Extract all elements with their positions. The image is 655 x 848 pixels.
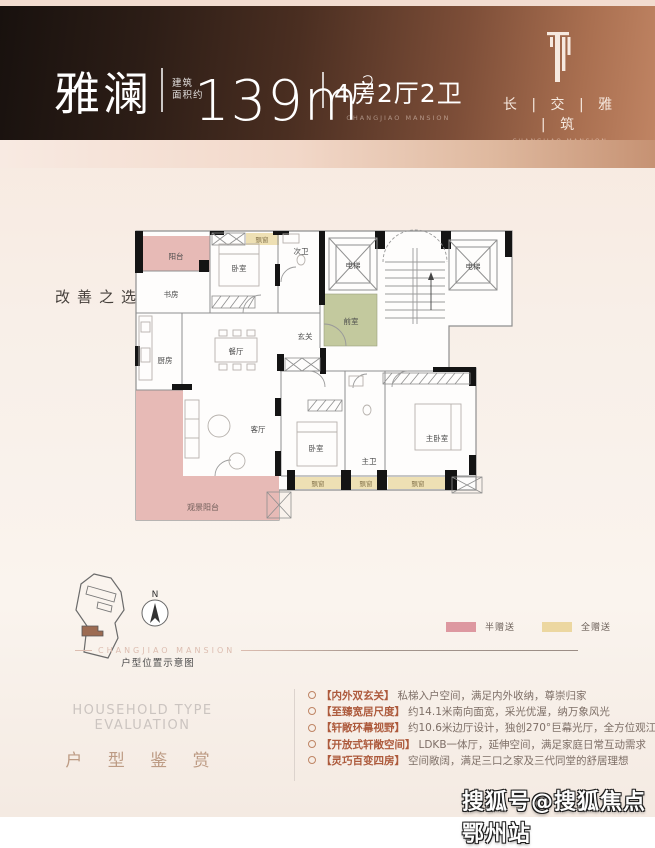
site-building bbox=[86, 586, 116, 602]
selling-point-row: 【灵巧百变四房】 空间敞阔，满足三口之家及三代同堂的舒居理想 bbox=[308, 752, 655, 768]
evaluation-title-cn: 户 型 鉴 赏 bbox=[35, 746, 250, 771]
legend-swatch-full bbox=[542, 622, 572, 632]
header-banner: 雅澜 建筑 面积约 139m2 4房2厅2卫 CHANGJIAO MANSION… bbox=[0, 6, 655, 140]
floor-plan: 阳台 书房 卧室 飘窗 次卫 电梯 电梯 前室 玄关 餐厅 厨房 客厅 观景阳台… bbox=[115, 218, 535, 538]
evaluation-vertical-divider bbox=[294, 689, 295, 781]
legend-label-full: 全赠送 bbox=[581, 620, 611, 633]
room-label-foyer: 玄关 bbox=[298, 331, 313, 341]
header-divider-2 bbox=[322, 72, 324, 108]
legend: 半赠送 全赠送 bbox=[446, 620, 611, 633]
selling-points-list: 【内外双玄关】 私梯入户空间，满足内外收纳，尊崇归家 【至臻宽居尺度】 约14.… bbox=[308, 687, 655, 768]
brand-name-cn: 长 | 交 | 雅 | 筑 bbox=[494, 94, 626, 134]
poster-page: 雅澜 建筑 面积约 139m2 4房2厅2卫 CHANGJIAO MANSION… bbox=[0, 0, 655, 817]
point-desc: 私梯入户空间，满足内外收纳，尊崇归家 bbox=[398, 688, 587, 703]
point-tag: 【灵巧百变四房】 bbox=[321, 753, 405, 768]
room-label-bedroom-top: 卧室 bbox=[232, 263, 247, 273]
brand-divider: CHANGJIAO MANSION bbox=[75, 646, 578, 655]
room-label-bedroom-bottom: 卧室 bbox=[309, 443, 324, 453]
room-label-study: 书房 bbox=[164, 289, 179, 299]
point-desc: 空间敞阔，满足三口之家及三代同堂的舒居理想 bbox=[408, 753, 629, 768]
bullet-ring-icon bbox=[308, 756, 316, 764]
room-label-kitchen: 厨房 bbox=[158, 355, 173, 365]
layout-subtext: CHANGJIAO MANSION bbox=[334, 114, 463, 122]
room-label-master-bath: 主卫 bbox=[362, 456, 377, 466]
point-desc: LDKB一体厅，延伸空间，满足家庭日常互动需求 bbox=[419, 737, 647, 752]
divider-line-left bbox=[75, 650, 92, 651]
site-plan: N 户型位置示意图 bbox=[58, 566, 268, 671]
room-label-baywindow-b1: 飘窗 bbox=[312, 479, 325, 488]
bullet-ring-icon bbox=[308, 707, 316, 715]
room-label-baywindow-b2: 飘窗 bbox=[360, 479, 373, 488]
room-label-bath2: 次卫 bbox=[294, 246, 309, 256]
bullet-ring-icon bbox=[308, 691, 316, 699]
tower-mark-icon bbox=[543, 32, 577, 84]
room-label-baywindow-b3: 飘窗 bbox=[412, 479, 425, 488]
layout-text: 4房2厅2卫 bbox=[334, 74, 463, 110]
brand-logo: 长 | 交 | 雅 | 筑 CHANGJIAO MANSION bbox=[494, 32, 626, 145]
point-desc: 约10.6米边厅设计，独创270°巨幕光厅，全方位观江 bbox=[408, 720, 655, 735]
point-desc: 约14.1米南向面宽，采光优渥，纳万象风光 bbox=[408, 704, 610, 719]
room-label-elevator-left: 电梯 bbox=[346, 260, 361, 270]
selling-point-row: 【轩敞环幕视野】 约10.6米边厅设计，独创270°巨幕光厅，全方位观江 bbox=[308, 720, 655, 736]
room-label-master-bedroom: 主卧室 bbox=[426, 433, 449, 443]
tagline-band: 改善之选 ＆ 观江雅居 bbox=[0, 140, 655, 168]
compass-north-label: N bbox=[152, 590, 159, 600]
bullet-ring-icon bbox=[308, 740, 316, 748]
site-building-wing bbox=[97, 602, 112, 612]
evaluation-title-en: HOUSEHOLD TYPE EVALUATION bbox=[35, 703, 250, 733]
point-tag: 【至臻宽居尺度】 bbox=[321, 704, 405, 719]
site-plan-caption: 户型位置示意图 bbox=[121, 657, 195, 669]
room-label-living: 客厅 bbox=[251, 424, 266, 434]
site-highlight-unit bbox=[82, 626, 103, 636]
unit-name: 雅澜 bbox=[54, 58, 152, 124]
room-label-baywindow-top: 飘窗 bbox=[256, 235, 269, 244]
divider-brand-text: CHANGJIAO MANSION bbox=[98, 646, 235, 655]
room-label-balcony: 阳台 bbox=[169, 251, 184, 261]
selling-point-row: 【开放式轩敞空间】 LDKB一体厅，延伸空间，满足家庭日常互动需求 bbox=[308, 736, 655, 752]
bullet-ring-icon bbox=[308, 724, 316, 732]
selling-point-row: 【内外双玄关】 私梯入户空间，满足内外收纳，尊崇归家 bbox=[308, 687, 655, 703]
divider-line-right bbox=[241, 650, 578, 651]
layout-block: 4房2厅2卫 CHANGJIAO MANSION bbox=[334, 74, 463, 122]
header-divider-1 bbox=[161, 68, 163, 112]
point-tag: 【开放式轩敞空间】 bbox=[321, 737, 416, 752]
legend-swatch-semi bbox=[446, 622, 476, 632]
point-tag: 【轩敞环幕视野】 bbox=[321, 720, 405, 735]
legend-label-semi: 半赠送 bbox=[485, 620, 515, 633]
room-label-frontroom: 前室 bbox=[344, 316, 359, 326]
room-label-view-balcony: 观景阳台 bbox=[187, 502, 219, 512]
room-label-elevator-right: 电梯 bbox=[466, 261, 481, 271]
watermark-text: 搜狐号@搜狐焦点鄂州站 bbox=[462, 784, 655, 848]
evaluation-titles: HOUSEHOLD TYPE EVALUATION 户 型 鉴 赏 bbox=[35, 703, 250, 771]
point-tag: 【内外双玄关】 bbox=[321, 688, 395, 703]
room-label-dining: 餐厅 bbox=[229, 347, 244, 356]
selling-point-row: 【至臻宽居尺度】 约14.1米南向面宽，采光优渥，纳万象风光 bbox=[308, 703, 655, 719]
